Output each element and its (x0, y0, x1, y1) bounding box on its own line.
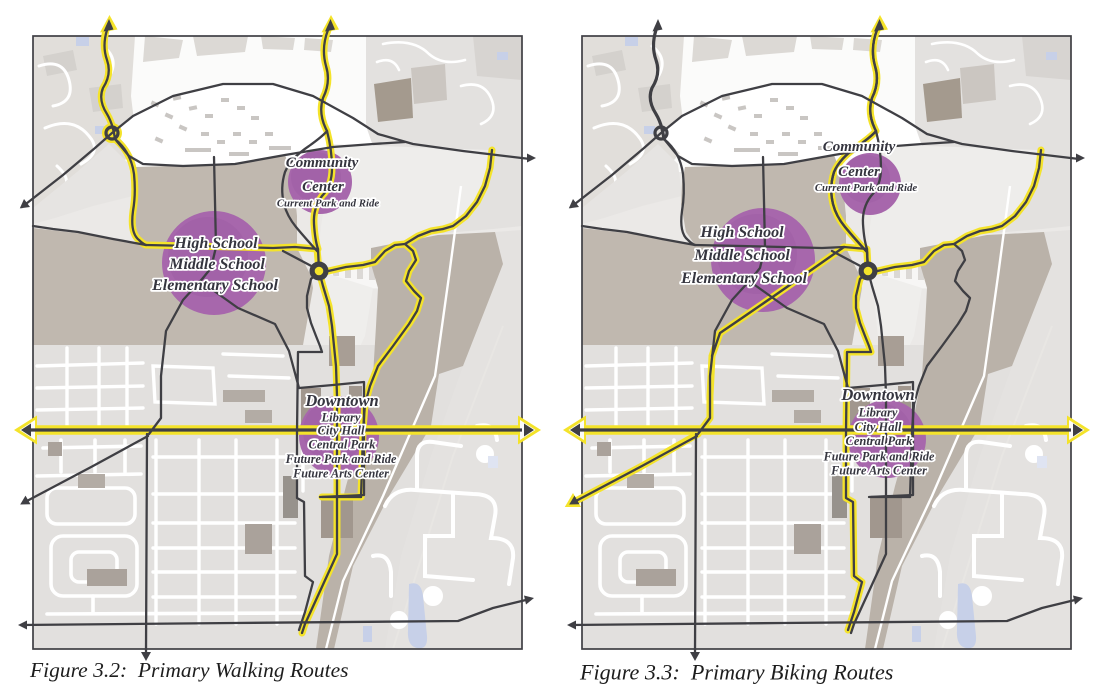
svg-text:Community: Community (823, 139, 896, 155)
svg-text:Future Arts Center: Future Arts Center (830, 464, 927, 478)
svg-text:High School: High School (699, 224, 784, 241)
svg-text:Figure 3.3: Primary Biking Ro: Figure 3.3: Primary Biking Routes (579, 660, 893, 685)
svg-text:Central Park: Central Park (308, 438, 376, 452)
svg-text:Library: Library (858, 406, 898, 420)
svg-text:Figure 3.2: Primary Walking R: Figure 3.2: Primary Walking Routes (29, 658, 348, 682)
svg-text:Community: Community (286, 155, 359, 171)
svg-text:Future Arts Center: Future Arts Center (292, 467, 389, 481)
svg-text:Current Park and Ride: Current Park and Ride (815, 182, 917, 194)
svg-text:Middle School: Middle School (693, 247, 790, 264)
svg-text:Central Park: Central Park (845, 434, 913, 448)
svg-text:Center: Center (838, 164, 880, 180)
svg-text:High School: High School (173, 235, 258, 252)
svg-text:Middle School: Middle School (168, 256, 265, 273)
svg-text:Elementary School: Elementary School (151, 277, 278, 294)
svg-text:Future Park and Ride: Future Park and Ride (823, 450, 935, 464)
svg-text:City Hall: City Hall (318, 424, 365, 438)
svg-text:Elementary School: Elementary School (680, 270, 807, 287)
svg-text:City Hall: City Hall (855, 420, 902, 434)
svg-text:Center: Center (302, 179, 344, 195)
svg-text:Future Park and Ride: Future Park and Ride (285, 452, 397, 466)
svg-text:Downtown: Downtown (304, 391, 378, 410)
svg-text:Downtown: Downtown (840, 385, 914, 404)
svg-text:Library: Library (321, 411, 361, 425)
svg-text:Current Park and Ride: Current Park and Ride (277, 198, 379, 210)
